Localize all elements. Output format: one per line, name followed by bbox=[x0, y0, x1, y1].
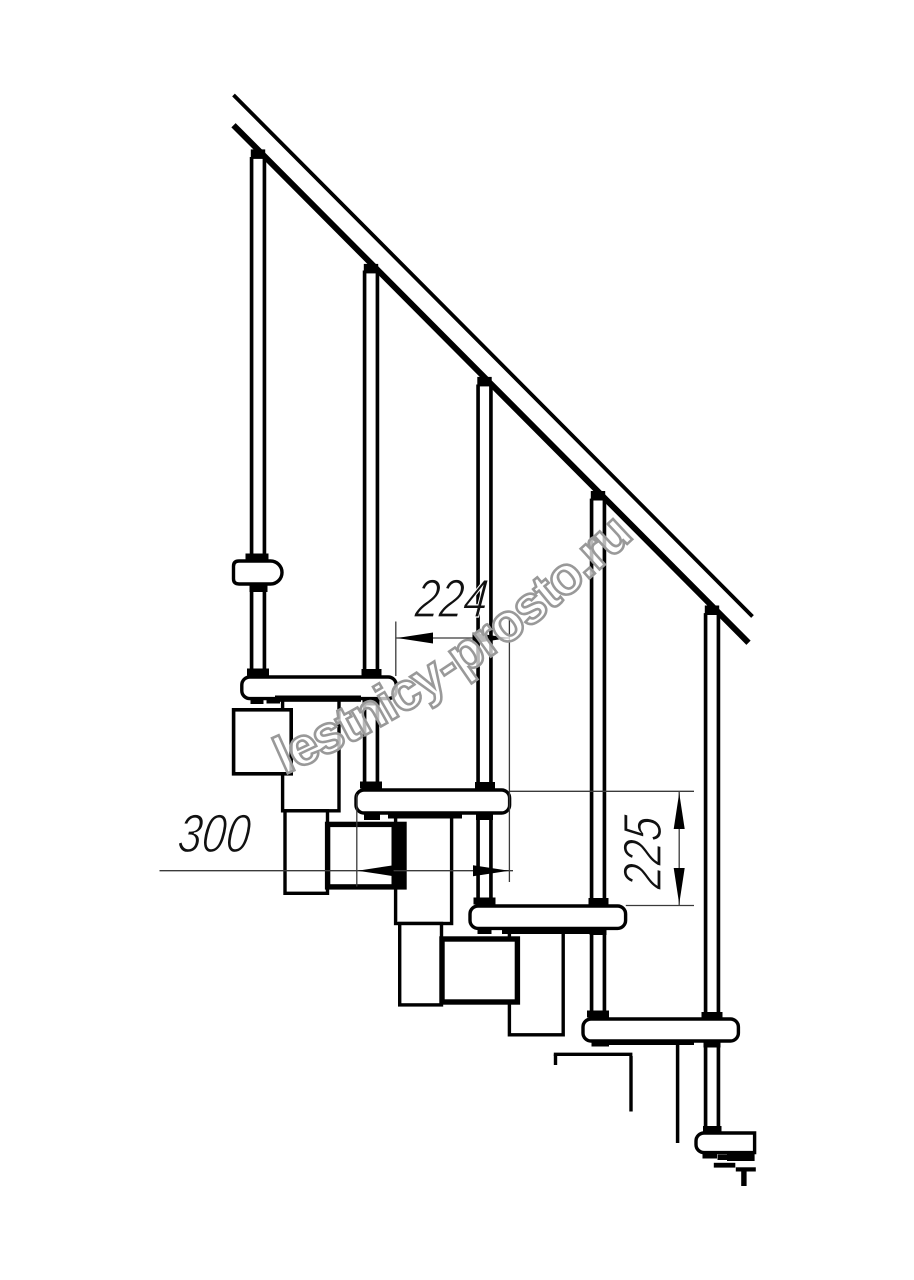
svg-text:225: 225 bbox=[614, 812, 673, 892]
svg-text:300: 300 bbox=[175, 805, 253, 864]
